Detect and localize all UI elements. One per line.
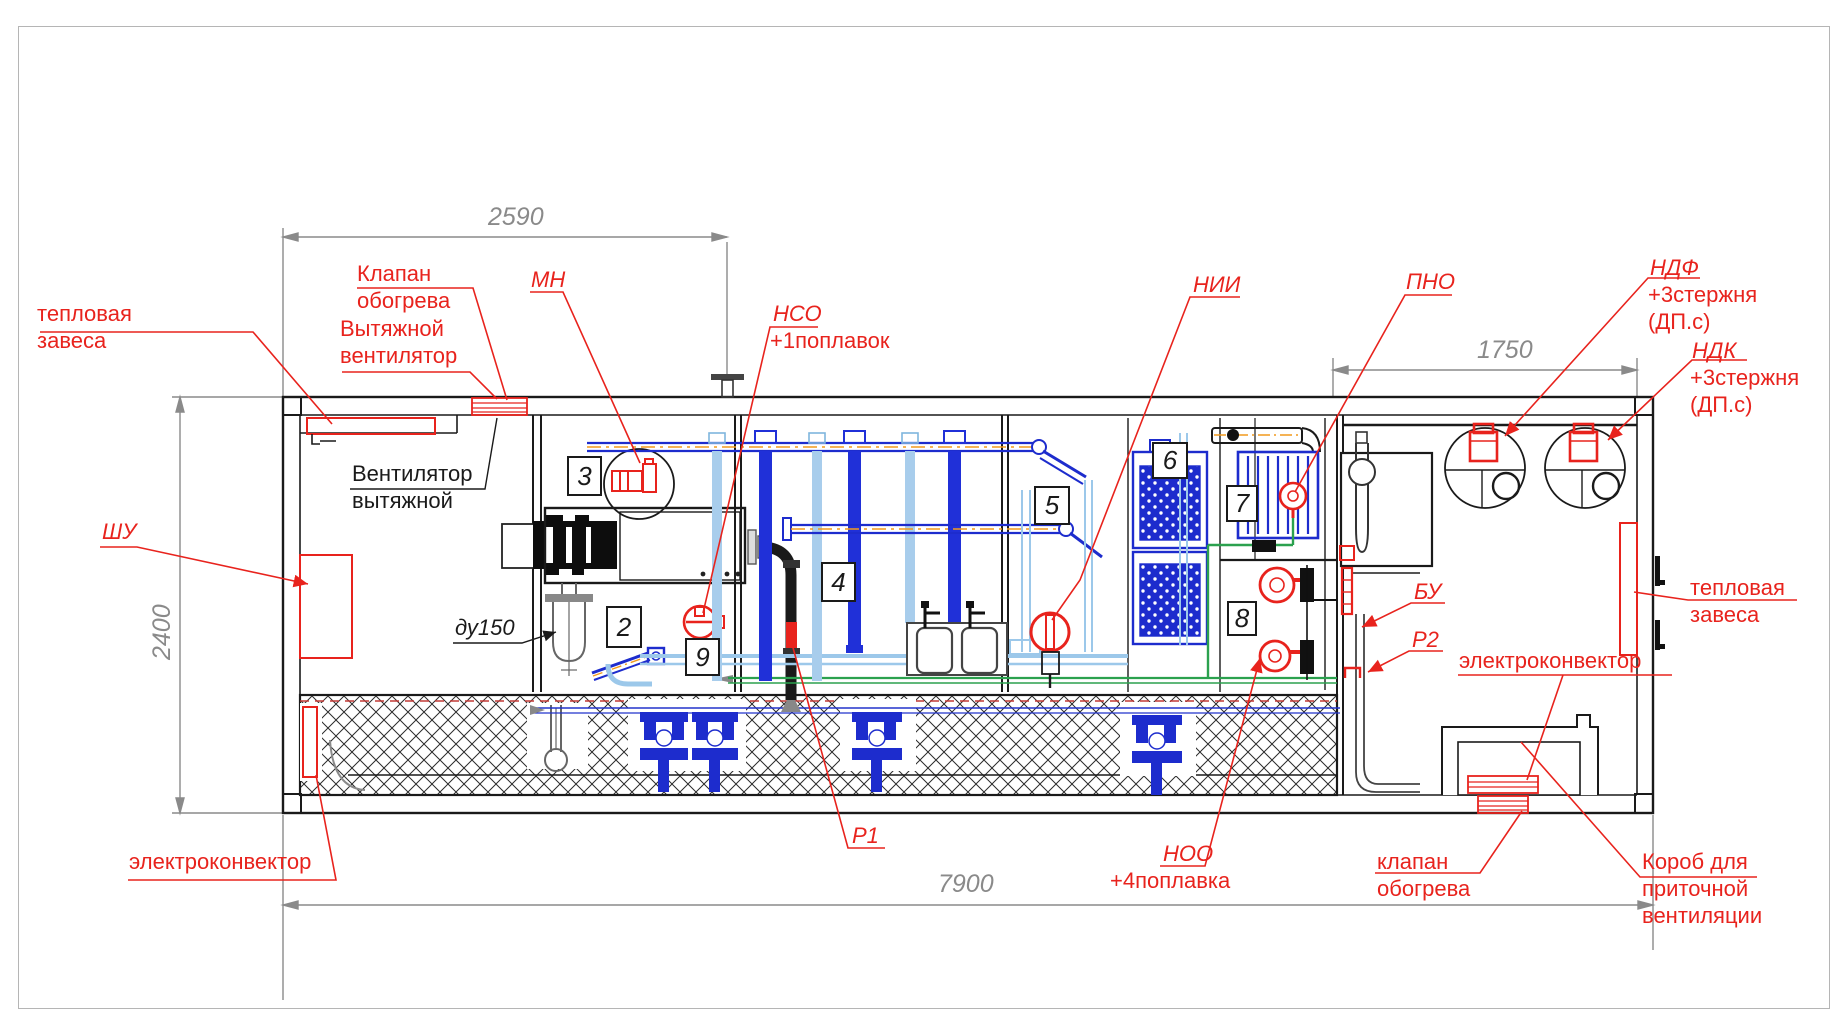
label-ndk: НДК +3стержня (ДП.с): [1692, 337, 1799, 418]
label-nso: НСО +1поплавок: [770, 300, 890, 354]
compressor-unit: [502, 515, 617, 575]
label-noo: НОО +4поплавка: [1110, 840, 1230, 894]
section-2: 2: [606, 606, 642, 648]
leader-shu: [100, 547, 308, 584]
section-3: 3: [567, 456, 602, 496]
label-shu: ШУ: [102, 518, 136, 545]
section-7: 7: [1226, 485, 1258, 522]
thermal-curtain-right-device: [1620, 523, 1637, 655]
section-8: 8: [1227, 601, 1257, 636]
label-r1: Р1: [852, 822, 879, 849]
noo-pump-lower: [1260, 641, 1300, 671]
label-electroconvector-left: электроконвектор: [129, 848, 311, 875]
heating-valve-bottom-device: [1478, 796, 1528, 813]
section-5: 5: [1034, 486, 1070, 525]
dim-top-span: 2590: [488, 203, 544, 232]
label-exhaust-fan-red: Вытяжной вентилятор: [340, 315, 457, 369]
thermal-curtain-left-device: [307, 418, 435, 434]
label-supply-duct: Короб для приточной вентиляции: [1642, 848, 1762, 929]
label-electroconvector-right: электроконвектор: [1459, 647, 1641, 674]
door-handles: [1655, 556, 1665, 650]
section-9: 9: [685, 638, 720, 676]
dim-right-span: 1750: [1477, 336, 1533, 365]
control-cabinet-shu: [300, 555, 352, 658]
label-ndf: НДФ +3стержня (ДП.с): [1650, 254, 1757, 335]
dim-total-length: 7900: [938, 870, 994, 899]
p1-red-valve: [786, 622, 797, 648]
section-6: 6: [1152, 442, 1188, 479]
noo-pump-upper: [1260, 568, 1302, 602]
label-mn: МН: [531, 266, 565, 293]
ndf-well: [1445, 424, 1525, 508]
label-r2: Р2: [1412, 626, 1439, 653]
container-side-view-drawing: [0, 0, 1847, 1035]
roof-vent-stack: [711, 374, 744, 397]
drawing-canvas: 2590 1750 7900 2400 тепловая завеса Клап…: [0, 0, 1847, 1035]
du150-pipe-unit: [545, 583, 593, 676]
supply-duct-box: [1442, 715, 1598, 813]
vestibule-right: [1340, 424, 1637, 813]
label-exhaust-fan-black: Вентилятор вытяжной: [352, 460, 472, 514]
p2-pipes: [1356, 614, 1420, 792]
leader-bu: [1362, 603, 1445, 627]
nii-pump: [1031, 613, 1069, 688]
section-4: 4: [821, 562, 856, 602]
leader-r2: [1368, 651, 1443, 672]
leader-mn: [530, 292, 640, 463]
label-heating-valve-bottom: клапан обогрева: [1377, 848, 1470, 902]
label-thermal-curtain-left: тепловая завеса: [37, 300, 132, 354]
label-nii: НИИ: [1193, 271, 1240, 298]
p1-riser: [748, 530, 800, 700]
label-du150: ду150: [455, 614, 515, 641]
dim-height: 2400: [148, 604, 177, 660]
p2-red-elbow: [1345, 668, 1360, 678]
label-bu: БУ: [1414, 578, 1441, 605]
label-pno: ПНО: [1406, 268, 1455, 295]
top-pipe-assembly: [1212, 428, 1320, 452]
leader-exhaust-fan-red: [342, 372, 497, 399]
label-heating-valve-top: Клапан обогрева: [357, 260, 450, 314]
pno-pump: [1280, 483, 1306, 518]
ndk-well: [1545, 424, 1625, 508]
label-thermal-curtain-right: тепловая завеса: [1690, 574, 1785, 628]
